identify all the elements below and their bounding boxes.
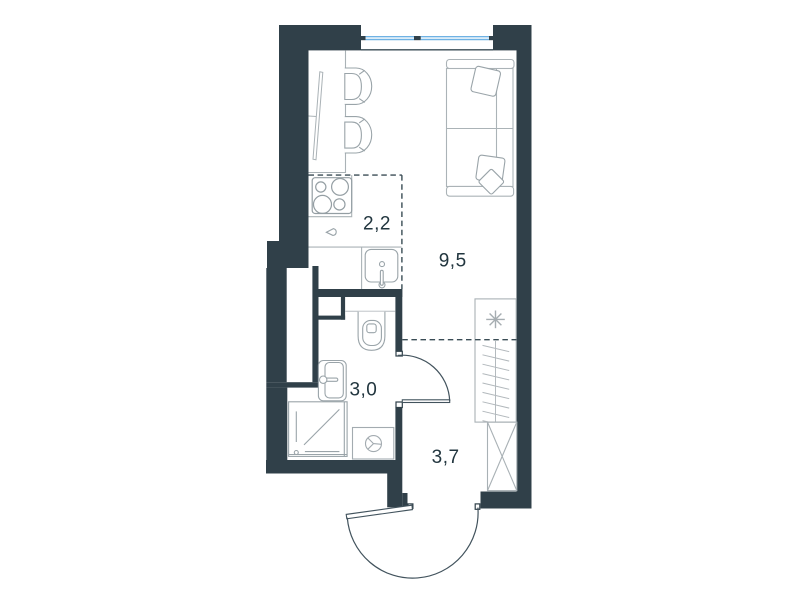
svg-text:3,0: 3,0 — [349, 379, 377, 400]
svg-text:2,2: 2,2 — [363, 214, 391, 235]
svg-text:9,5: 9,5 — [439, 251, 467, 272]
svg-text:3,7: 3,7 — [432, 447, 460, 468]
